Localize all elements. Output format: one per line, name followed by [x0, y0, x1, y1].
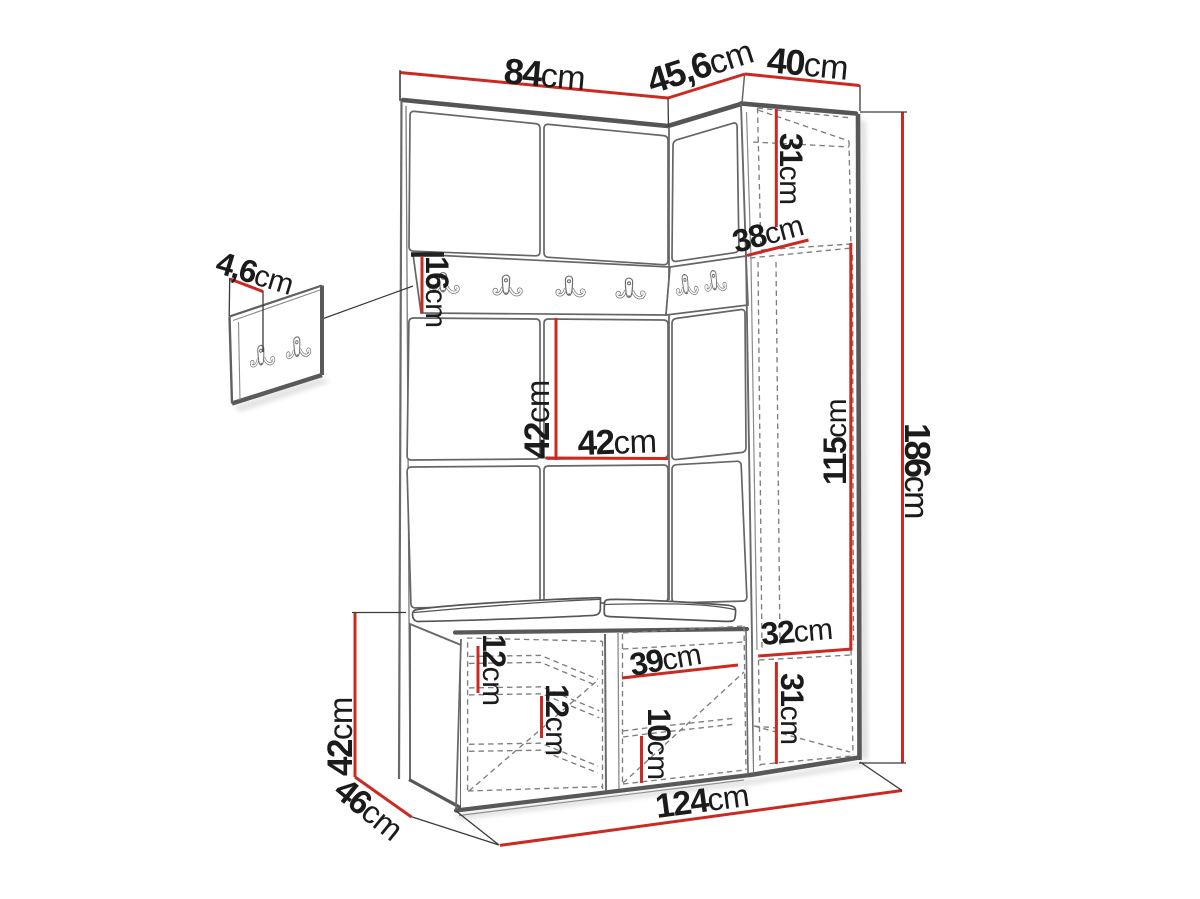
svg-text:31cm: 31cm: [774, 673, 810, 745]
svg-text:186cm: 186cm: [897, 423, 938, 518]
svg-text:42cm: 42cm: [577, 421, 657, 463]
svg-text:42cm: 42cm: [518, 380, 557, 459]
svg-text:16cm: 16cm: [419, 256, 455, 328]
svg-text:12cm: 12cm: [539, 684, 575, 756]
svg-text:115cm: 115cm: [817, 399, 853, 485]
svg-text:10cm: 10cm: [641, 708, 677, 780]
svg-text:32cm: 32cm: [759, 610, 833, 652]
svg-text:42cm: 42cm: [321, 697, 360, 776]
svg-text:31cm: 31cm: [773, 133, 809, 205]
svg-text:12cm: 12cm: [476, 634, 512, 706]
